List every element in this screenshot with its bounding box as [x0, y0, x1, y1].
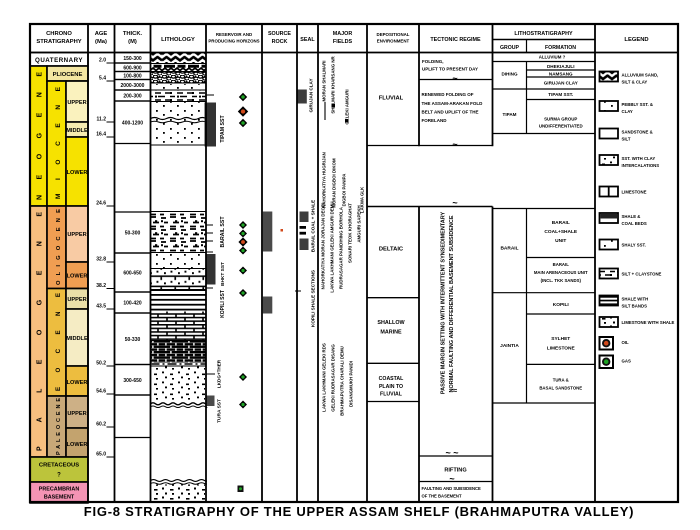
svg-text:ENVIRONMENT: ENVIRONMENT: [377, 39, 410, 44]
svg-text:DELTAIC: DELTAIC: [379, 247, 404, 253]
svg-text:100-800: 100-800: [123, 74, 142, 80]
svg-text:SHALE &: SHALE &: [622, 214, 641, 219]
svg-text:TURA SST: TURA SST: [217, 399, 223, 423]
svg-text:LAKWA LAKHMANI GELEKI RDS: LAKWA LAKHMANI GELEKI RDS: [322, 343, 327, 412]
svg-text:50-300: 50-300: [125, 231, 141, 237]
svg-text:TECTONIC REGIME: TECTONIC REGIME: [430, 37, 481, 43]
svg-text:43.5: 43.5: [96, 304, 106, 310]
svg-text:GIRUJAN CLAY: GIRUJAN CLAY: [544, 81, 578, 86]
svg-text:TIPAM SST: TIPAM SST: [220, 115, 226, 143]
svg-text:65.0: 65.0: [96, 452, 106, 458]
svg-text:PLIOCENE: PLIOCENE: [53, 72, 83, 78]
svg-text:2000-3000: 2000-3000: [121, 83, 145, 89]
svg-text:ROCK: ROCK: [272, 39, 288, 45]
svg-text:BARAIL: BARAIL: [552, 220, 570, 226]
svg-text:INTERCALATIONS: INTERCALATIONS: [622, 163, 660, 168]
svg-text:COASTAL: COASTAL: [379, 376, 405, 382]
svg-text:OLIGOCENE: OLIGOCENE: [56, 209, 62, 285]
svg-text:GAS: GAS: [622, 359, 631, 364]
svg-text:LKDG+THER: LKDG+THER: [217, 359, 222, 388]
svg-text:SILT & CLAY: SILT & CLAY: [622, 79, 648, 84]
svg-text:LOWER: LOWER: [67, 442, 88, 448]
svg-text:50-330: 50-330: [125, 337, 141, 343]
svg-text:FLUVIAL: FLUVIAL: [380, 392, 403, 398]
svg-text:OIL: OIL: [622, 340, 630, 345]
svg-text:54.6: 54.6: [96, 389, 106, 395]
svg-text:600-900: 600-900: [123, 65, 142, 71]
svg-text:~: ~: [452, 140, 457, 150]
svg-text:RESERVOIR AND: RESERVOIR AND: [216, 32, 252, 37]
svg-text:TIPAM SST.: TIPAM SST.: [548, 92, 573, 97]
svg-text:LITHOSTRATIGRAPHY: LITHOSTRATIGRAPHY: [514, 31, 573, 37]
svg-text:LOWER: LOWER: [67, 170, 88, 176]
svg-text:PALEOCENE: PALEOCENE: [56, 398, 62, 455]
svg-text:GIRUJAN CLAY: GIRUJAN CLAY: [309, 78, 314, 112]
svg-text:COAL+SHALE: COAL+SHALE: [544, 229, 577, 235]
svg-text:KOPILI SST: KOPILI SST: [220, 290, 226, 318]
svg-text:5.4: 5.4: [99, 76, 106, 82]
svg-text:150-300: 150-300: [123, 56, 142, 62]
svg-text:UNIT: UNIT: [555, 238, 566, 244]
svg-text:CRETACEOUS: CRETACEOUS: [39, 463, 79, 469]
svg-text:JAINTIA: JAINTIA: [500, 343, 519, 349]
svg-text:UPPER: UPPER: [67, 232, 86, 238]
svg-text:FIELDS: FIELDS: [333, 39, 353, 45]
svg-text:MAIN ARENACEOUS UNIT: MAIN ARENACEOUS UNIT: [534, 270, 588, 275]
svg-text:(Ma): (Ma): [95, 39, 107, 45]
svg-text:24.6: 24.6: [96, 201, 106, 207]
svg-text:100-420: 100-420: [123, 301, 142, 307]
svg-text:FAULTING AND SUBSIDENCE: FAULTING AND SUBSIDENCE: [422, 486, 482, 491]
svg-text:(M): (M): [128, 39, 137, 45]
svg-text:TURA &: TURA &: [553, 378, 569, 383]
svg-text:16.4: 16.4: [96, 132, 106, 138]
svg-text:NAMSANG: NAMSANG: [549, 72, 573, 77]
svg-text:PASSIVE MARGIN SETTING WITH IN: PASSIVE MARGIN SETTING WITH INTERMITTENT…: [441, 212, 447, 395]
svg-text:FOLDING,: FOLDING,: [422, 59, 444, 64]
svg-text:MORAN DIGBOI DIKOM: MORAN DIGBOI DIKOM: [332, 158, 337, 208]
svg-text:SHALLOW: SHALLOW: [377, 320, 405, 326]
svg-text:(INCL. TKK SANDS): (INCL. TKK SANDS): [541, 278, 582, 283]
svg-text:~: ~: [449, 474, 454, 484]
svg-text:CHRONO: CHRONO: [46, 31, 72, 37]
svg-text:BELT AND UPLIFT OF THE: BELT AND UPLIFT OF THE: [422, 110, 479, 115]
svg-text:DIGBOI PANIPA: DIGBOI PANIPA: [342, 173, 347, 207]
svg-text:OF THE BASEMENT: OF THE BASEMENT: [422, 494, 462, 499]
svg-text:600-650: 600-650: [123, 271, 142, 277]
svg-text:CLAY: CLAY: [622, 109, 633, 114]
svg-text:FLUVIAL: FLUVIAL: [379, 96, 404, 102]
svg-text:BARAIL: BARAIL: [500, 246, 518, 252]
svg-text:KOPILI: KOPILI: [553, 302, 570, 308]
svg-text:TIPAM: TIPAM: [503, 112, 517, 117]
svg-text:BHKT SST: BHKT SST: [220, 262, 226, 286]
svg-text:DEPOSITIONAL: DEPOSITIONAL: [377, 32, 410, 37]
svg-text:DHEKIAJULI: DHEKIAJULI: [547, 64, 575, 69]
svg-text:LOWER: LOWER: [67, 380, 88, 386]
svg-text:50.2: 50.2: [96, 361, 106, 367]
svg-text:AMGURI SAPEKH: AMGURI SAPEKH: [357, 205, 362, 242]
svg-text:LOWER: LOWER: [67, 274, 88, 280]
svg-text:LIMESTONE WITH SHALE: LIMESTONE WITH SHALE: [622, 320, 675, 325]
svg-text:SURMA GROUP: SURMA GROUP: [544, 117, 577, 122]
svg-text:ALLUVIUM ?: ALLUVIUM ?: [539, 55, 566, 60]
svg-text:THICK.: THICK.: [123, 31, 143, 37]
svg-text:BASAL SANDSTONE: BASAL SANDSTONE: [539, 386, 582, 391]
svg-text:38.2: 38.2: [96, 283, 106, 289]
svg-text:FIG-8 STRATIGRAPHY OF THE UPPE: FIG-8 STRATIGRAPHY OF THE UPPER ASSAM SH…: [84, 504, 634, 519]
svg-text:60.2: 60.2: [96, 422, 106, 428]
svg-text:LEGEND: LEGEND: [624, 37, 648, 43]
svg-text:RIFTING: RIFTING: [444, 468, 466, 474]
svg-text:UPPER: UPPER: [67, 100, 86, 106]
svg-text:2.0: 2.0: [99, 58, 106, 64]
svg-text:BARAIL: BARAIL: [553, 262, 570, 267]
svg-text:SILT: SILT: [622, 136, 631, 141]
svg-text:MORAN SHALMARI: MORAN SHALMARI: [322, 61, 327, 102]
svg-text:PRECAMBRIAN: PRECAMBRIAN: [39, 487, 80, 493]
svg-text:SONARI TEOK KHORAGHAT: SONARI TEOK KHORAGHAT: [348, 203, 353, 263]
svg-text:~: ~: [452, 198, 457, 208]
svg-text:PRODUCING HORIZONS: PRODUCING HORIZONS: [208, 39, 259, 44]
svg-text:SHALE WITH: SHALE WITH: [622, 296, 649, 301]
svg-text:MIDDLE: MIDDLE: [66, 336, 88, 342]
svg-text:MARINE: MARINE: [380, 330, 402, 336]
svg-text:PEBBLY SST. &: PEBBLY SST. &: [622, 102, 654, 107]
svg-text:400-1200: 400-1200: [122, 120, 143, 126]
svg-text:UNDIFFERENTIATED: UNDIFFERENTIATED: [539, 124, 583, 129]
svg-text:LITHOLOGY: LITHOLOGY: [161, 37, 195, 43]
svg-text:SANDSTONE &: SANDSTONE &: [622, 129, 653, 134]
svg-text:BARAIL SST: BARAIL SST: [220, 216, 226, 248]
svg-text:STRATIGRAPHY: STRATIGRAPHY: [36, 39, 81, 45]
svg-text:GROUP: GROUP: [500, 45, 520, 51]
svg-text:BRAHMAPUTRA CHARALI DEMU: BRAHMAPUTRA CHARALI DEMU: [340, 346, 345, 416]
svg-text:UPPER: UPPER: [67, 411, 86, 417]
svg-text:SHALY SST.: SHALY SST.: [622, 243, 646, 248]
svg-text:SEAL: SEAL: [300, 37, 315, 43]
svg-text:BASEMENT: BASEMENT: [44, 495, 75, 501]
svg-text:UPPER: UPPER: [67, 297, 86, 303]
svg-text:11.2: 11.2: [97, 117, 107, 123]
svg-text:SST. WITH CLAY: SST. WITH CLAY: [622, 156, 656, 161]
svg-text:FORELAND: FORELAND: [422, 118, 448, 123]
svg-text:NAHORKATIYA HUGRIJAN: NAHORKATIYA HUGRIJAN: [322, 152, 327, 208]
svg-text:MIDDLE: MIDDLE: [66, 128, 88, 134]
svg-text:200-300: 200-300: [123, 94, 142, 100]
svg-text:RENEWED FOLDING OF: RENEWED FOLDING OF: [422, 92, 474, 97]
svg-text:SOURCE: SOURCE: [268, 31, 291, 37]
svg-text:THE ASSAM-ARAKAN FOLD: THE ASSAM-ARAKAN FOLD: [422, 101, 484, 106]
svg-text:≈: ≈: [453, 386, 458, 395]
svg-text:QUATERNARY: QUATERNARY: [35, 57, 83, 64]
svg-text:GELEKI RUDRASAGAR DISANG: GELEKI RUDRASAGAR DISANG: [331, 344, 336, 412]
svg-text:PLAIN TO: PLAIN TO: [379, 384, 403, 390]
svg-text:LIMESTONE: LIMESTONE: [622, 190, 647, 195]
svg-text:32.8: 32.8: [96, 257, 106, 263]
svg-text:UPLIFT TO PRESENT DAY: UPLIFT TO PRESENT DAY: [422, 67, 478, 72]
svg-text:SYLHET: SYLHET: [551, 336, 570, 342]
svg-text:COAL BEDS: COAL BEDS: [622, 221, 647, 226]
svg-text:DIHING: DIHING: [501, 72, 518, 77]
svg-text:MAJOR: MAJOR: [333, 31, 353, 37]
svg-text:LAKWA LAKHMANI GELEKI AMGURI D: LAKWA LAKHMANI GELEKI AMGURI DEMU: [330, 201, 335, 292]
svg-text:NORMAL FAULTING AND DIFFERENTI: NORMAL FAULTING AND DIFFERENTIAL BASEMEN…: [449, 215, 455, 392]
svg-text:SILT + CLAYSTONE: SILT + CLAYSTONE: [622, 272, 662, 277]
svg-text:~: ~: [452, 74, 457, 84]
svg-text:AGE: AGE: [95, 31, 108, 37]
svg-text:~ ~: ~ ~: [445, 448, 458, 458]
svg-text:ALLUVIUM SAND,: ALLUVIUM SAND,: [622, 72, 659, 77]
svg-text:?: ?: [57, 473, 61, 479]
svg-text:300-650: 300-650: [123, 378, 142, 384]
svg-text:FORMATION: FORMATION: [545, 45, 576, 51]
svg-text:BARAIL COAL + SHALE: BARAIL COAL + SHALE: [311, 200, 316, 252]
svg-text:SILT BANDS: SILT BANDS: [622, 303, 648, 308]
svg-text:LIMESTONE: LIMESTONE: [547, 346, 576, 352]
svg-text:KOPILI SHALE SECTIONS: KOPILI SHALE SECTIONS: [311, 270, 316, 327]
svg-text:NAHORKATIYA MORAN JORAJAN DEOR: NAHORKATIYA MORAN JORAJAN DEORI: [321, 203, 326, 290]
svg-text:DISANGMUKH PANIDI: DISANGMUKH PANIDI: [349, 361, 354, 407]
svg-text:RUDRASAGAR PANIDIHING BORHOLA: RUDRASAGAR PANIDIHING BORHOLA: [339, 206, 344, 289]
